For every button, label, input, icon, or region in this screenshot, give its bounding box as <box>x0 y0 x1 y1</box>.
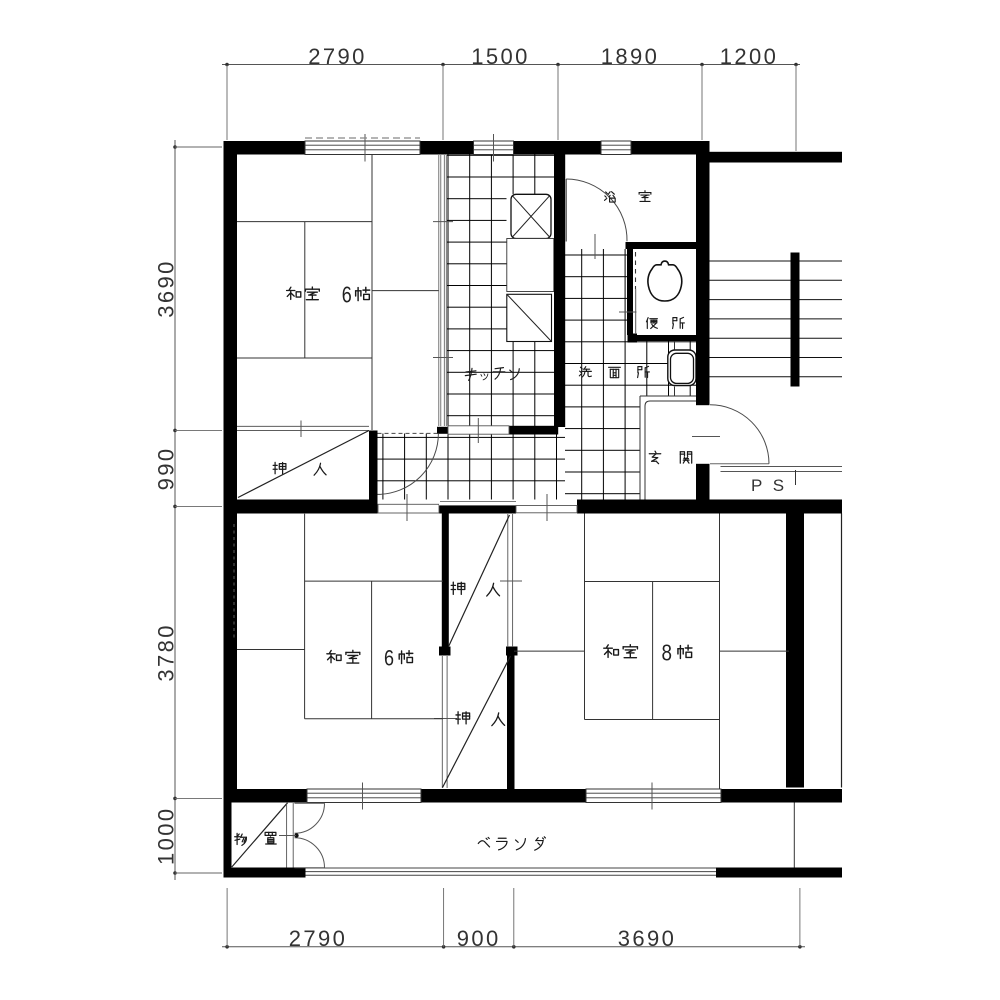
svg-text:1200: 1200 <box>720 44 779 69</box>
svg-text:2790: 2790 <box>308 44 367 69</box>
svg-text:990: 990 <box>154 446 179 490</box>
svg-text:P S: P S <box>751 476 787 495</box>
svg-text:3690: 3690 <box>154 259 179 318</box>
svg-text:2790: 2790 <box>289 926 348 951</box>
svg-text:1890: 1890 <box>601 44 660 69</box>
svg-text:3690: 3690 <box>618 926 677 951</box>
svg-text:1500: 1500 <box>471 44 530 69</box>
svg-text:3780: 3780 <box>154 623 179 682</box>
svg-text:6: 6 <box>384 646 394 671</box>
svg-text:6: 6 <box>342 282 352 308</box>
svg-text:900: 900 <box>457 926 501 951</box>
svg-text:8: 8 <box>662 640 673 666</box>
svg-text:1000: 1000 <box>154 806 179 865</box>
